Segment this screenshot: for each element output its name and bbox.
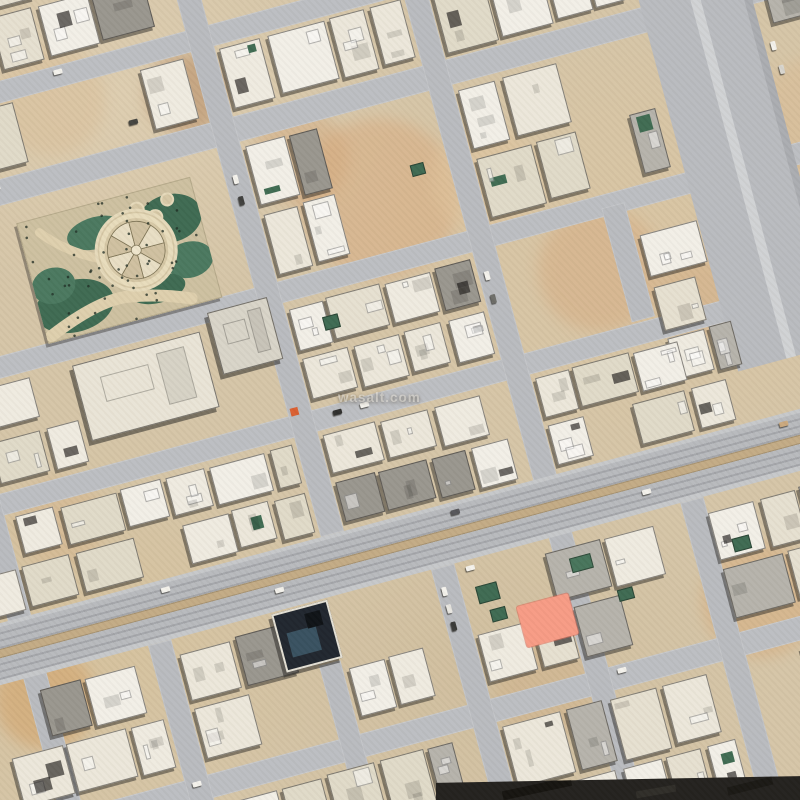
building (327, 762, 390, 800)
building (0, 431, 50, 484)
watermark: wasalt.com (338, 390, 421, 405)
roof-detail (406, 427, 413, 435)
roof-detail (391, 49, 405, 58)
roof-detail (585, 632, 604, 647)
car (770, 41, 777, 51)
building (0, 7, 45, 70)
roof-detail (252, 659, 267, 669)
building (21, 554, 79, 607)
roof-detail (612, 370, 631, 384)
roof-detail (720, 751, 735, 765)
roof-detail (446, 9, 462, 28)
roof-detail (680, 250, 694, 261)
roof-detail (338, 370, 353, 384)
roof-detail (469, 95, 487, 111)
roof-detail (360, 357, 374, 372)
building (404, 322, 451, 372)
roof-detail (401, 281, 409, 288)
roof-detail (10, 49, 28, 63)
roof-detail (287, 625, 322, 657)
car (465, 564, 475, 571)
roof-detail (452, 269, 474, 289)
building (47, 420, 90, 470)
roof-detail (691, 302, 699, 309)
roof-detail (149, 736, 164, 748)
roof-detail (247, 308, 271, 353)
building (194, 694, 263, 759)
roof-detail (23, 515, 38, 526)
building (535, 369, 579, 418)
roof-detail (354, 447, 372, 458)
building (431, 450, 476, 499)
car (778, 64, 785, 74)
roof-detail (525, 750, 534, 767)
roof-detail (20, 27, 32, 40)
building (762, 0, 800, 23)
roof-detail (352, 766, 373, 787)
roof-detail (464, 321, 483, 338)
roof-detail (703, 706, 714, 714)
building (536, 131, 591, 199)
roof-detail (146, 76, 164, 94)
building (267, 20, 340, 94)
green-patch (475, 581, 501, 604)
roof-detail (71, 520, 86, 529)
roof-detail (344, 492, 361, 510)
roof-detail (359, 689, 376, 702)
roof-detail (784, 513, 800, 530)
building (354, 334, 410, 387)
roof-detail (513, 738, 522, 750)
roof-detail (265, 157, 283, 170)
building (323, 422, 386, 475)
roof-detail (712, 402, 725, 416)
roof-detail (346, 785, 365, 800)
roof-detail (615, 558, 626, 565)
roof-detail (33, 452, 42, 468)
building (325, 284, 390, 339)
roof-detail (119, 690, 132, 700)
roof-detail (103, 694, 121, 709)
roof-detail (156, 346, 197, 405)
roof-detail (386, 29, 403, 39)
roof-detail (7, 35, 22, 48)
roof-detail (294, 253, 303, 265)
building (662, 674, 722, 744)
building (548, 416, 594, 465)
building (182, 513, 238, 564)
roof-detail (614, 700, 630, 709)
dark-band-smudge (727, 776, 774, 795)
roof-detail (554, 136, 575, 156)
building (179, 641, 242, 701)
roof-detail (601, 740, 610, 756)
roof-detail (289, 500, 305, 519)
roof-detail (677, 400, 688, 415)
roof-detail (455, 29, 466, 42)
roof-detail (644, 376, 661, 388)
roof-detail (716, 337, 731, 355)
roof-detail (222, 318, 249, 344)
roof-detail (63, 445, 79, 457)
roof-detail (480, 132, 488, 139)
roof-detail (247, 44, 257, 53)
roof-detail (54, 717, 66, 731)
roof-detail (188, 484, 199, 497)
roof-detail (444, 479, 451, 486)
roof-detail (214, 707, 223, 723)
roof-detail (188, 499, 199, 508)
roof-detail (216, 540, 225, 548)
roof-detail (86, 568, 100, 583)
roof-detail (142, 487, 160, 502)
car (128, 118, 138, 125)
building (604, 525, 666, 587)
roof-detail (506, 0, 522, 13)
roof-detail (5, 449, 21, 463)
roof-detail (304, 170, 319, 184)
roof-detail (390, 430, 402, 446)
roof-detail (565, 443, 586, 460)
roof-detail (401, 674, 416, 689)
roof-detail (732, 582, 748, 596)
building (120, 478, 171, 527)
roof-detail (314, 226, 322, 235)
roof-detail (582, 373, 601, 384)
roof-detail (532, 84, 541, 94)
building (208, 453, 274, 506)
building (378, 459, 437, 510)
roof-detail (193, 666, 206, 683)
roof-detail (33, 777, 52, 794)
green-patch (617, 586, 636, 602)
roof-detail (214, 662, 225, 673)
satellite-map[interactable]: wasalt.com (0, 0, 800, 800)
building (380, 409, 438, 459)
roof-detail (551, 390, 566, 402)
roof-detail (327, 245, 345, 255)
roof-detail (81, 756, 96, 771)
roof-detail (486, 167, 495, 182)
building (84, 666, 147, 727)
roof-detail (263, 185, 281, 195)
roof-detail (376, 344, 385, 354)
roof-detail (312, 201, 332, 220)
roof-detail (689, 350, 706, 367)
building (335, 473, 385, 523)
roof-detail (489, 659, 503, 671)
roof-detail (588, 736, 599, 747)
roof-detail (251, 472, 269, 490)
roof-detail (41, 576, 52, 584)
roof-detail (488, 633, 505, 651)
building (166, 468, 214, 516)
building (231, 500, 277, 548)
roof-detail (570, 423, 580, 431)
roof-detail (311, 327, 319, 336)
building (384, 271, 441, 323)
roof-detail (499, 466, 514, 476)
roof-detail (100, 364, 154, 402)
roof-detail (636, 113, 654, 132)
building (274, 492, 315, 540)
roof-detail (368, 674, 381, 688)
building (388, 647, 435, 705)
roof-detail (698, 401, 712, 414)
roof-detail (437, 764, 450, 776)
building (691, 379, 736, 428)
dark-band-smudge (636, 785, 677, 799)
roof-detail (56, 10, 73, 28)
building (502, 63, 572, 137)
roof-detail (558, 377, 570, 393)
roof-detail (387, 349, 403, 366)
building (90, 0, 155, 41)
roof-detail (468, 424, 485, 436)
roof-detail (481, 467, 500, 485)
roof-detail (235, 77, 249, 94)
roof-detail (53, 26, 69, 42)
roof-detail (305, 28, 321, 45)
roof-detail (280, 465, 289, 475)
building (471, 438, 519, 489)
roof-detail (319, 355, 338, 366)
roof-detail (514, 164, 526, 182)
building (434, 395, 491, 448)
roof-detail (411, 276, 432, 293)
roof-detail (365, 300, 384, 314)
building (633, 341, 688, 392)
roof-detail (737, 521, 749, 533)
roof-detail (412, 792, 423, 800)
roof-detail (545, 720, 554, 727)
roof-detail (334, 434, 344, 447)
roof-detail (113, 0, 133, 12)
building (434, 259, 481, 311)
roof-detail (304, 610, 324, 629)
roof-detail (157, 102, 171, 116)
roof-detail (45, 760, 65, 779)
roof-detail (689, 712, 709, 724)
roof-detail (477, 114, 495, 127)
building (448, 311, 495, 363)
building (632, 390, 695, 445)
roof-detail (648, 130, 662, 148)
building (629, 108, 671, 174)
roof-detail (73, 7, 91, 24)
building (760, 490, 800, 548)
roof-detail (663, 252, 672, 261)
building (0, 377, 40, 431)
green-patch (489, 606, 508, 623)
